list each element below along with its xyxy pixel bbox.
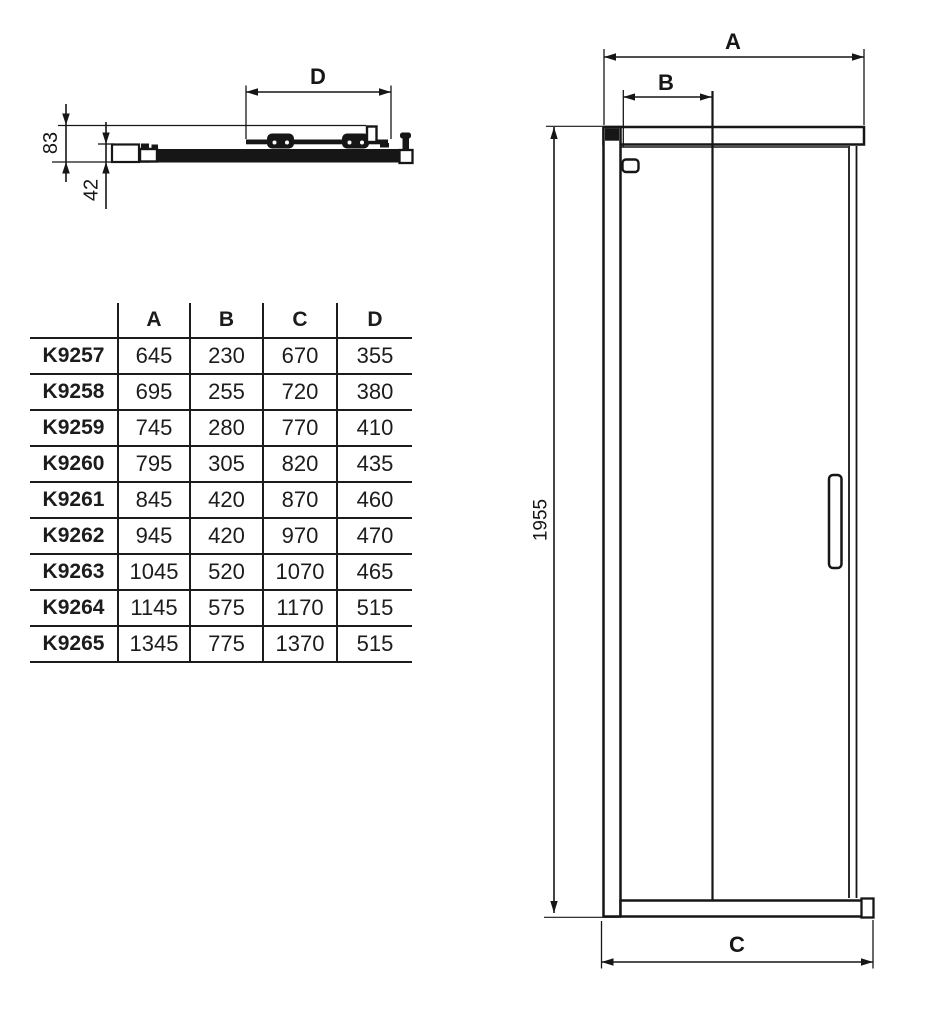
roller-carriage-left xyxy=(267,134,294,149)
value-cell: 355 xyxy=(337,338,412,374)
value-cell: 770 xyxy=(263,410,337,446)
value-cell: 720 xyxy=(263,374,337,410)
sliding-panel-hook xyxy=(380,143,389,148)
upright-tab-section xyxy=(367,127,377,143)
value-cell: 420 xyxy=(190,482,263,518)
arrow-up-icon xyxy=(62,162,70,174)
model-cell: K9260 xyxy=(30,446,118,482)
arrow-left-icon xyxy=(602,958,614,966)
table-row: K9265 1345 775 1370 515 xyxy=(30,626,412,662)
value-cell: 460 xyxy=(337,482,412,518)
value-cell: 845 xyxy=(118,482,190,518)
value-cell: 465 xyxy=(337,554,412,590)
arrow-right-icon xyxy=(852,53,864,61)
value-cell: 575 xyxy=(190,590,263,626)
table-row: K9259 745 280 770 410 xyxy=(30,410,412,446)
dim-c-label: C xyxy=(729,932,745,957)
dim-a: A xyxy=(604,29,864,125)
model-cell: K9265 xyxy=(30,626,118,662)
value-cell: 745 xyxy=(118,410,190,446)
wall-bracket xyxy=(623,160,639,173)
model-cell: K9264 xyxy=(30,590,118,626)
value-cell: 1370 xyxy=(263,626,337,662)
profile-dimensions: D 83 42 xyxy=(40,64,391,209)
end-cap-section xyxy=(400,150,413,163)
elevation-drawing xyxy=(604,91,874,918)
bottom-rail-end-cap xyxy=(862,899,874,918)
dim-83-label: 83 xyxy=(40,132,62,154)
dim-c: C xyxy=(602,920,874,969)
roller-carriage-right xyxy=(342,134,369,149)
value-cell: 420 xyxy=(190,518,263,554)
value-cell: 795 xyxy=(118,446,190,482)
value-cell: 1070 xyxy=(263,554,337,590)
model-cell: K9257 xyxy=(30,338,118,374)
value-cell: 515 xyxy=(337,626,412,662)
value-cell: 515 xyxy=(337,590,412,626)
table-row: K9258 695 255 720 380 xyxy=(30,374,412,410)
dim-83: 83 xyxy=(40,104,70,182)
adjustment-notch-section xyxy=(140,149,157,162)
table-row: K9261 845 420 870 460 xyxy=(30,482,412,518)
value-cell: 670 xyxy=(263,338,337,374)
model-cell: K9261 xyxy=(30,482,118,518)
value-cell: 775 xyxy=(190,626,263,662)
value-cell: 230 xyxy=(190,338,263,374)
shower-door-spec-sheet: D 83 42 xyxy=(0,0,941,1024)
door-handle xyxy=(829,475,842,568)
end-post xyxy=(403,134,410,151)
arrow-down-icon xyxy=(62,114,70,126)
table-header-row: A B C D xyxy=(30,303,412,338)
value-cell: 410 xyxy=(337,410,412,446)
arrow-left-icon xyxy=(246,88,258,96)
value-cell: 970 xyxy=(263,518,337,554)
value-cell: 645 xyxy=(118,338,190,374)
value-cell: 820 xyxy=(263,446,337,482)
arrow-right-icon xyxy=(379,88,391,96)
value-cell: 695 xyxy=(118,374,190,410)
arrow-down-icon xyxy=(550,901,557,913)
arrow-left-icon xyxy=(623,93,635,100)
col-header-a: A xyxy=(118,303,190,338)
top-rail xyxy=(604,127,865,145)
value-cell: 1345 xyxy=(118,626,190,662)
value-cell: 470 xyxy=(337,518,412,554)
dim-b-label: B xyxy=(658,70,674,95)
table-row: K9257 645 230 670 355 xyxy=(30,338,412,374)
wall-profile-top-fill xyxy=(605,128,619,141)
value-cell: 380 xyxy=(337,374,412,410)
arrow-up-icon xyxy=(102,162,109,174)
col-header-c: C xyxy=(263,303,337,338)
dim-a-label: A xyxy=(725,29,741,54)
value-cell: 1170 xyxy=(263,590,337,626)
bottom-rail xyxy=(621,901,874,917)
table-row: K9260 795 305 820 435 xyxy=(30,446,412,482)
model-cell: K9262 xyxy=(30,518,118,554)
value-cell: 1145 xyxy=(118,590,190,626)
model-cell: K9258 xyxy=(30,374,118,410)
value-cell: 305 xyxy=(190,446,263,482)
value-cell: 435 xyxy=(337,446,412,482)
elevation-dimensions: A B 1955 xyxy=(531,29,874,969)
value-cell: 945 xyxy=(118,518,190,554)
value-cell: 870 xyxy=(263,482,337,518)
value-cell: 1045 xyxy=(118,554,190,590)
arrow-right-icon xyxy=(700,93,712,100)
arrow-left-icon xyxy=(604,53,616,61)
arrow-up-icon xyxy=(550,127,557,139)
wall-channel-section xyxy=(112,145,139,163)
notch-tab xyxy=(141,144,149,151)
dimensions-table: A B C D K9257 645 230 670 355 K9258 695 … xyxy=(30,303,412,663)
col-header-d: D xyxy=(337,303,412,338)
table-row: K9263 1045 520 1070 465 xyxy=(30,554,412,590)
model-cell: K9259 xyxy=(30,410,118,446)
model-cell: K9263 xyxy=(30,554,118,590)
arrow-right-icon xyxy=(861,958,873,966)
dim-height-label: 1955 xyxy=(531,499,552,541)
dimensions-table-body: K9257 645 230 670 355 K9258 695 255 720 … xyxy=(30,338,412,662)
value-cell: 255 xyxy=(190,374,263,410)
dim-42-label: 42 xyxy=(81,179,103,201)
value-cell: 280 xyxy=(190,410,263,446)
arrow-down-icon xyxy=(102,133,109,145)
wall-profile xyxy=(604,127,621,917)
dim-d-label: D xyxy=(310,64,326,89)
fixed-panel-profile-bar xyxy=(157,149,399,163)
table-row: K9264 1145 575 1170 515 xyxy=(30,590,412,626)
value-cell: 520 xyxy=(190,554,263,590)
corner-cell xyxy=(30,303,118,338)
table-row: K9262 945 420 970 470 xyxy=(30,518,412,554)
col-header-b: B xyxy=(190,303,263,338)
dim-42: 42 xyxy=(81,122,110,209)
